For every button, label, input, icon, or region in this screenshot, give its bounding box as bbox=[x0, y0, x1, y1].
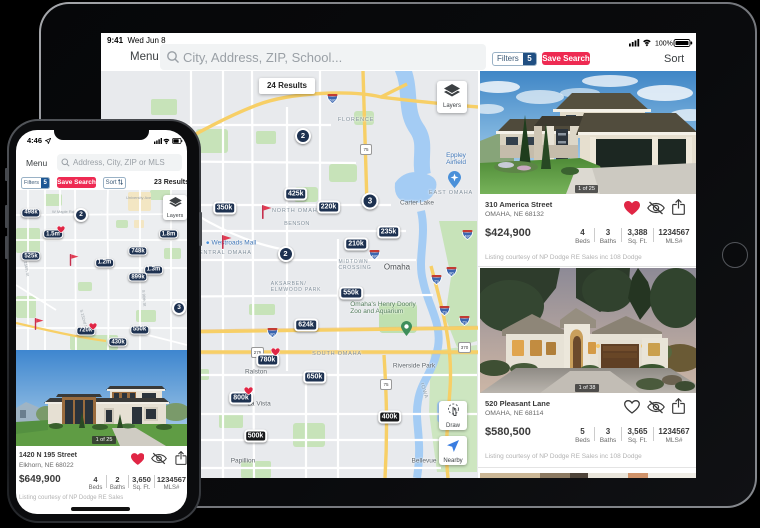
svg-text:480: 480 bbox=[371, 254, 378, 259]
svg-text:480: 480 bbox=[464, 234, 471, 239]
svg-text:University Ave: University Ave bbox=[126, 195, 152, 200]
svg-text:29: 29 bbox=[442, 310, 447, 315]
svg-text:29: 29 bbox=[462, 320, 467, 325]
svg-text:680: 680 bbox=[329, 98, 336, 103]
svg-text:80: 80 bbox=[270, 332, 275, 337]
svg-text:80: 80 bbox=[449, 271, 454, 276]
svg-text:29: 29 bbox=[434, 279, 439, 284]
svg-text:W Maple Rd: W Maple Rd bbox=[52, 209, 74, 214]
svg-text:100%: 100% bbox=[655, 40, 673, 47]
